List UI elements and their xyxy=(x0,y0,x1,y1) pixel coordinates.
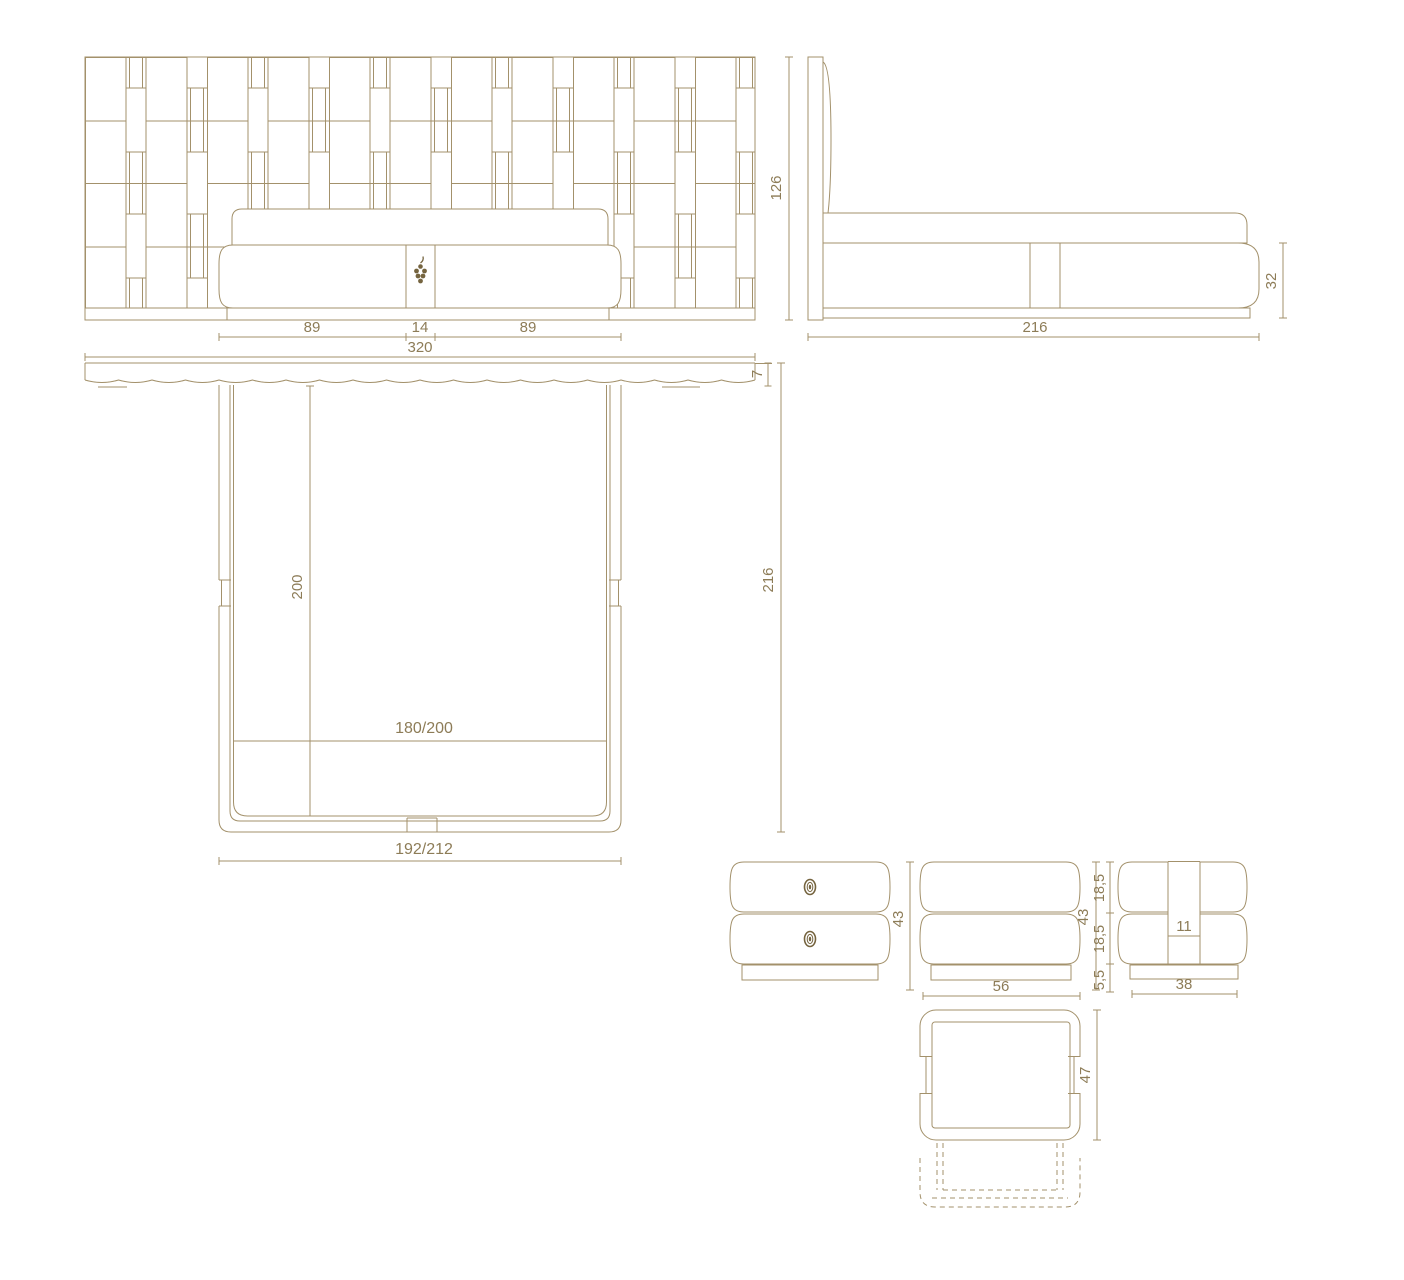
nightstand-front-plinth xyxy=(742,965,878,980)
dim-label-nightstand-depth: 38 xyxy=(1176,976,1193,993)
dim-label-mattress-width-alt: /200 xyxy=(422,720,453,737)
nightstand-front-view: 43 xyxy=(730,862,914,990)
open-drawer-dashed-outline xyxy=(920,1143,1080,1207)
dim-line-47 xyxy=(1093,1010,1101,1140)
dim-label-strap-width-side: 11 xyxy=(1176,918,1192,935)
dim-line-32 xyxy=(1279,243,1287,318)
mattress-side xyxy=(823,213,1247,243)
bed-front-view: 89 14 89 320 126 xyxy=(85,57,793,361)
dim-label-total-width: 320 xyxy=(407,339,432,356)
dim-label-lower-drawer: 18,5 xyxy=(1092,925,1108,953)
dim-label-mattress-width-bold: 180 xyxy=(395,720,422,737)
headboard-panel-side xyxy=(808,57,823,320)
bed-plinth-side xyxy=(823,308,1250,318)
dim-label-panel-height: 126 xyxy=(768,175,785,200)
headboard-scallop-edge xyxy=(85,380,755,383)
headboard-panel-plan xyxy=(85,363,755,380)
dim-label-mattress-width: 180/200 xyxy=(395,720,453,737)
mattress-front xyxy=(232,209,608,245)
bed-frame-plan-inner xyxy=(230,385,610,821)
dim-label-frame-width-bold: 192 xyxy=(395,841,422,858)
drawing-canvas: 89 14 89 320 126 216 32 7 180/20 xyxy=(0,0,1404,1280)
dim-label-bed-right: 89 xyxy=(520,319,537,336)
bed-side-view: 216 32 xyxy=(808,57,1287,341)
dim-label-nightstand-height-front: 43 xyxy=(890,911,907,928)
technical-drawing-sheet: 89 14 89 320 126 216 32 7 180/20 xyxy=(0,0,1404,1280)
dim-label-nightstand-width: 56 xyxy=(993,978,1010,995)
nightstand-back-view: 43 18,5 18,5 5,5 56 xyxy=(920,862,1114,1000)
dim-line-216-plan xyxy=(777,363,785,832)
nightstand-back-drawer-bottom xyxy=(920,914,1080,964)
dim-label-total-depth: 216 xyxy=(1022,319,1047,336)
nightstand-top-view: 47 xyxy=(916,1010,1101,1207)
dim-label-plan-depth: 216 xyxy=(760,567,777,592)
bed-frame-plan-outer xyxy=(219,385,621,832)
dim-line-126 xyxy=(785,57,793,320)
dim-line-43-front xyxy=(906,862,914,990)
nightstand-side-view: 11 38 xyxy=(1118,862,1247,999)
dim-label-mattress-length: 200 xyxy=(289,574,306,599)
nightstand-back-drawer-top xyxy=(920,862,1080,912)
nightstand-plan-outer xyxy=(920,1010,1080,1140)
dim-label-frame-width-alt: /212 xyxy=(422,841,453,858)
footboard-strap-notch xyxy=(407,818,437,832)
dim-label-bed-left: 89 xyxy=(304,319,321,336)
dim-line-200 xyxy=(306,386,314,816)
bed-base-side xyxy=(823,243,1259,308)
dim-label-strap-width: 14 xyxy=(412,319,429,336)
dim-label-frame-width: 192/212 xyxy=(395,841,453,858)
dim-label-plinth-height: 5,5 xyxy=(1092,970,1108,990)
dim-label-plan-depth-nightstand: 47 xyxy=(1077,1067,1094,1084)
dim-label-panel-thickness: 7 xyxy=(749,370,766,378)
dim-line-192-212 xyxy=(219,857,621,865)
dim-label-upper-drawer: 18,5 xyxy=(1092,874,1108,902)
bed-top-view: 7 180/200 192/212 200 216 xyxy=(85,363,785,865)
dim-label-base-height: 32 xyxy=(1263,273,1280,290)
dim-label-nightstand-height-back: 43 xyxy=(1075,909,1092,926)
